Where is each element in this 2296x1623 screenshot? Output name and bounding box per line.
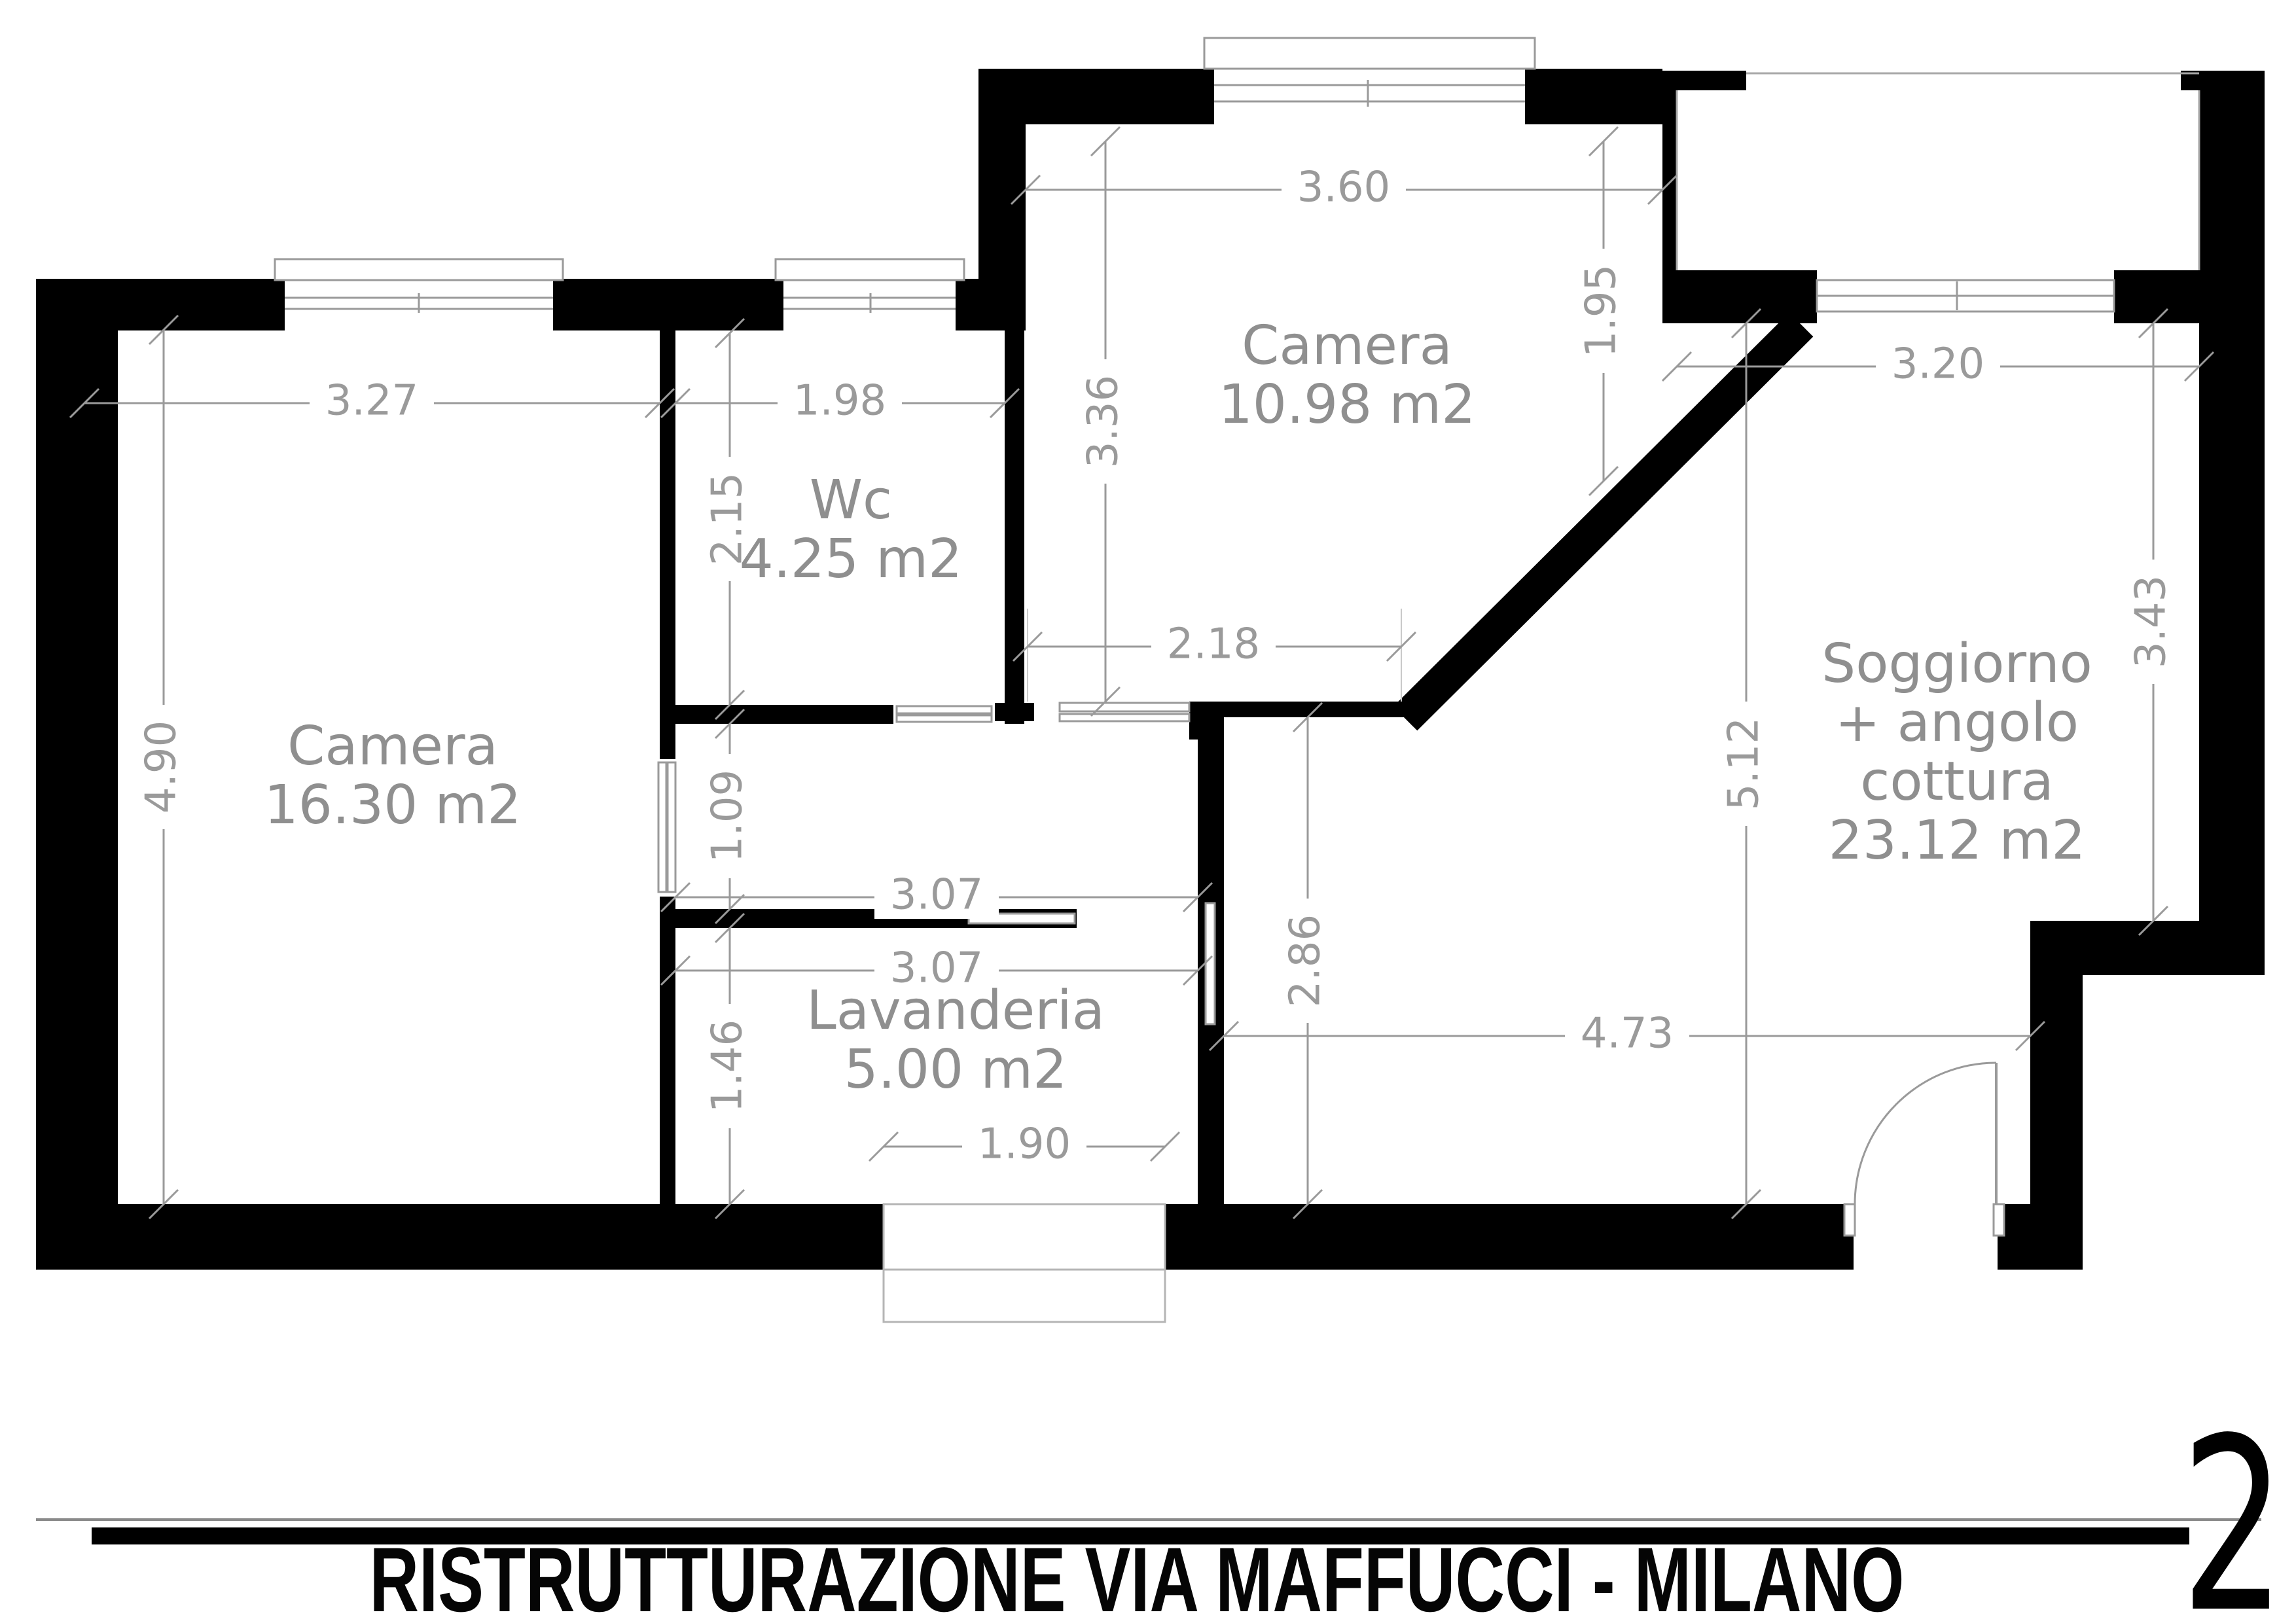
pocket-slot-vertical [1206, 903, 1215, 1024]
door-jamb [1994, 1204, 2004, 1236]
dim-label-soggiorno-top-width: 3.20 [1892, 340, 1985, 389]
dim-label-lavanderia-door-width: 1.90 [978, 1120, 1071, 1169]
window-camera-sx [275, 259, 563, 313]
terrace-layer [1677, 73, 2199, 270]
dim-label-soggiorno-lower-width: 4.73 [1581, 1010, 1674, 1058]
window-sill-box [1204, 38, 1535, 69]
lavanderia-french-door [884, 1204, 1165, 1322]
entry-door [1844, 1063, 2004, 1236]
room-label-camera-top-area: 10.98 m2 [1219, 374, 1476, 436]
room-label-wc-area: 4.25 m2 [740, 528, 963, 590]
floor-plan-page: 3.27 1.98 3.60 3.20 2.18 3.07 3.07 1.90 … [0, 0, 2296, 1623]
dim-label-lavanderia-top-width: 3.07 [890, 871, 984, 919]
wall-bottom-left [36, 1204, 884, 1270]
title-block: RISTRUTTURAZIONE VIA MAFFUCCI - MILANO 2 [36, 1387, 2286, 1623]
dim-label-camera-sx-height: 4.90 [137, 721, 186, 814]
wall-camera-top-seg2 [1525, 69, 1662, 124]
door-sill [658, 762, 666, 892]
dim-label-lavanderia-height: 1.46 [704, 1020, 752, 1113]
wall-camera-top-bottom-thin [1198, 702, 1407, 717]
wall-bottom-mid [1165, 1204, 1854, 1270]
door-jamb [1844, 1204, 1855, 1236]
wall-top-left-seg2 [553, 279, 783, 330]
room-label-soggiorno-name2: + angolo [1835, 692, 2079, 754]
dim-label-soggiorno-passage-height: 2.86 [1282, 914, 1330, 1008]
camera-top-door [1060, 703, 1189, 721]
wall-top-left-seg1 [36, 279, 285, 330]
wc-door [897, 706, 992, 722]
wall-right-outer-lower [2030, 921, 2083, 1270]
dim-label-camera-top-height-left: 3.36 [1079, 375, 1128, 469]
room-label-soggiorno-name3: cottura [1860, 751, 2054, 813]
dim-label-camera-sx-width: 3.27 [325, 377, 419, 425]
wall-wc-east [1005, 330, 1024, 724]
window-sill-box [776, 259, 964, 280]
wall-soggiorno-top-left-block [1662, 270, 1817, 323]
window-camera-top [1204, 38, 1535, 107]
dim-label-soggiorno-height-right: 3.43 [2127, 575, 2176, 669]
wall-right-outer-upper [2199, 71, 2265, 921]
room-label-wc-name: Wc [810, 469, 892, 531]
room-label-soggiorno-name1: Soggiorno [1821, 633, 2092, 695]
wall-left-outer [36, 279, 118, 1270]
door-sill [897, 715, 992, 722]
wall-soggiorno-top-right-seg [2114, 270, 2199, 323]
wall-wc-bottom [675, 705, 893, 724]
door-sill [1060, 714, 1189, 721]
wall-terrace-left-thin [1662, 90, 1677, 270]
room-label-camera-top-name: Camera [1242, 315, 1452, 377]
camera-sx-door [658, 762, 675, 892]
dim-label-camera-top-width: 3.60 [1297, 164, 1391, 212]
window-wc [776, 259, 964, 313]
wall-camera-wc-west-lower [660, 897, 675, 1204]
room-label-lavanderia-name: Lavanderia [806, 980, 1105, 1042]
room-label-camera-sx-area: 16.30 m2 [264, 774, 522, 836]
window-sill-box [275, 259, 563, 280]
wall-wc-door-jamb [995, 703, 1034, 721]
wall-camera-top-seg1 [978, 69, 1214, 124]
dim-label-wc-width: 1.98 [793, 377, 887, 425]
room-label-camera-sx-name: Camera [287, 715, 498, 777]
door-sill [897, 706, 992, 713]
project-title: RISTRUTTURAZIONE VIA MAFFUCCI - MILANO [370, 1528, 1905, 1623]
floor-plan-drawing: 3.27 1.98 3.60 3.20 2.18 3.07 3.07 1.90 … [0, 0, 2296, 1623]
dim-label-corridor-height: 1.09 [704, 770, 752, 863]
wall-terrace-parapet-left [1662, 71, 1746, 90]
window-soggiorno [1817, 280, 2114, 312]
dim-label-camera-top-lower-width: 2.18 [1167, 620, 1261, 669]
door-swing-arc [1855, 1063, 1996, 1204]
sheet-number: 2 [2181, 1387, 2286, 1623]
room-label-soggiorno-area: 23.12 m2 [1829, 810, 2086, 872]
door-sill [668, 762, 675, 892]
dim-label-camera-top-height-right: 1.95 [1577, 264, 1626, 358]
door-recess [884, 1204, 1165, 1322]
room-label-lavanderia-area: 5.00 m2 [844, 1039, 1067, 1101]
door-sill [1060, 703, 1189, 711]
dim-label-soggiorno-height-left: 5.12 [1720, 717, 1768, 811]
